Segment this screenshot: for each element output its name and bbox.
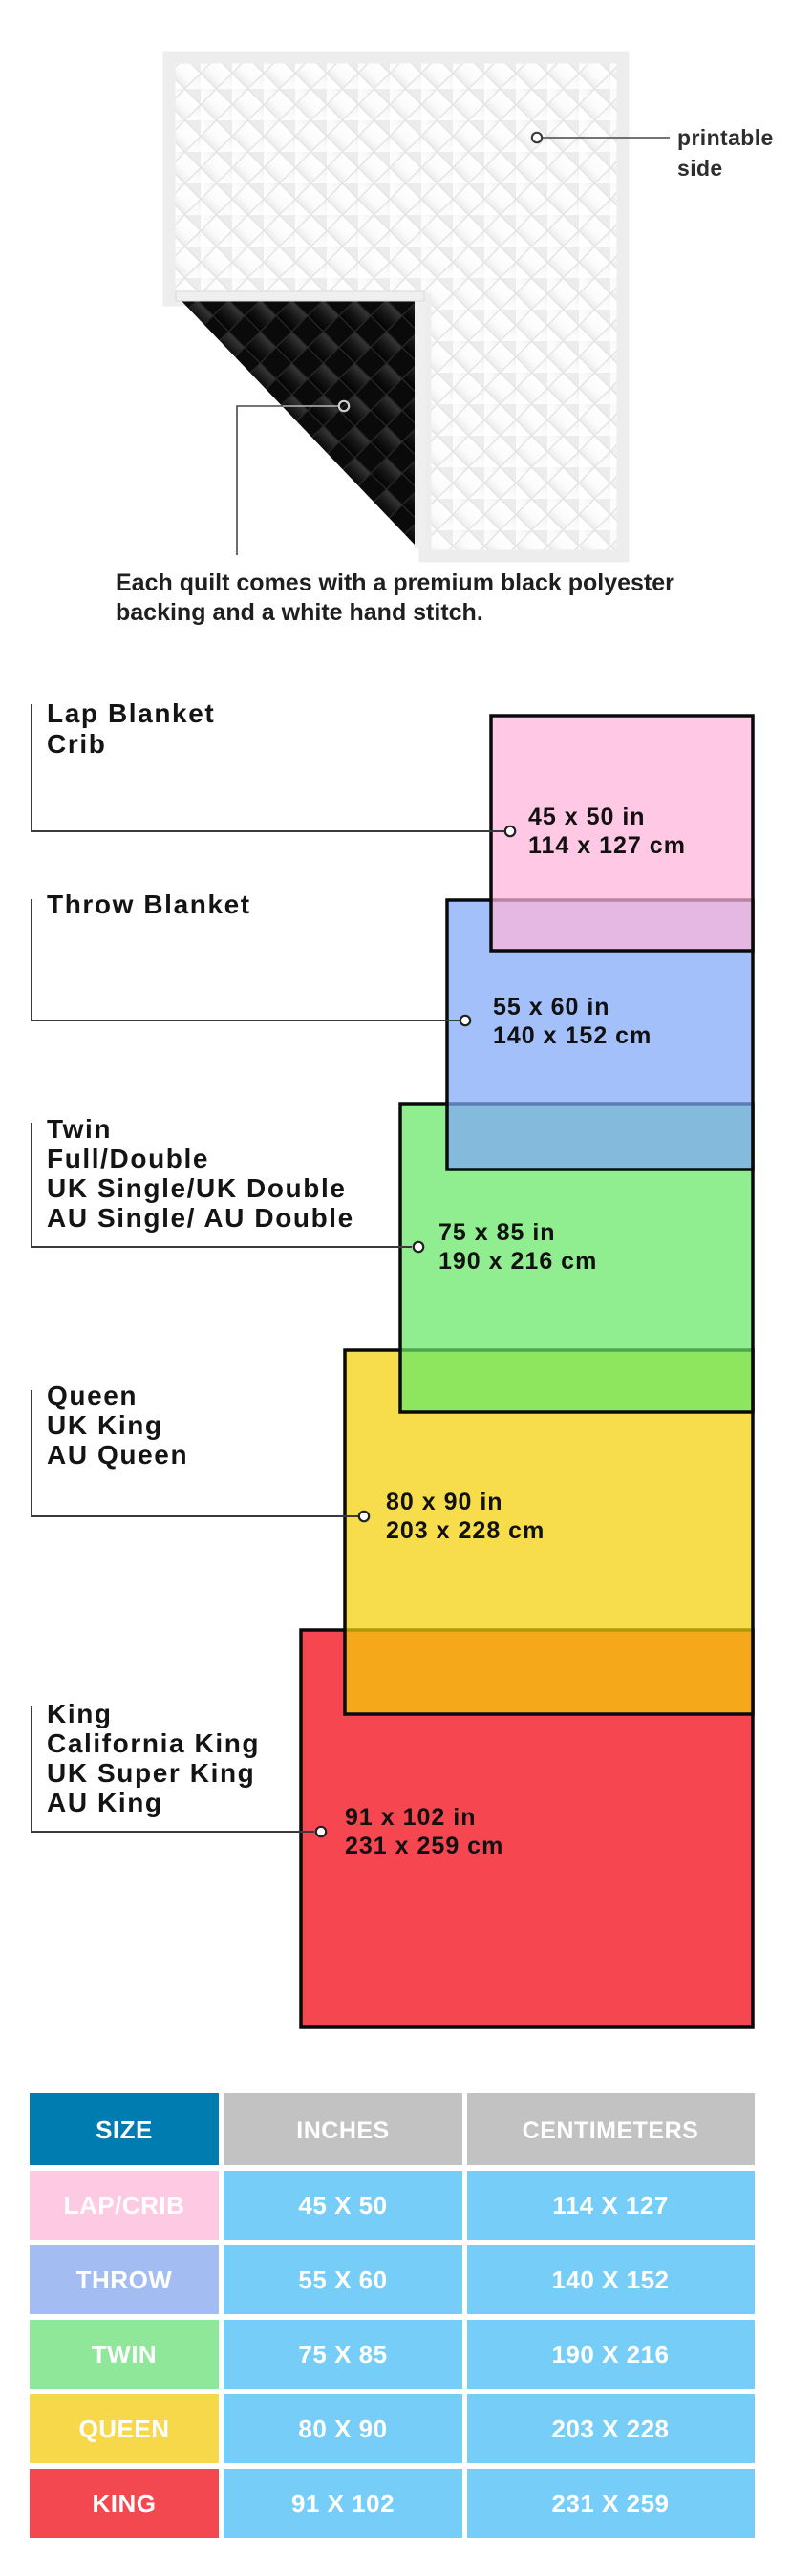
svg-text:231 X 259: 231 X 259 <box>551 2489 669 2518</box>
svg-text:King: King <box>47 1699 113 1728</box>
svg-text:203 x 228 cm: 203 x 228 cm <box>386 1517 545 1544</box>
svg-text:TWIN: TWIN <box>92 2340 157 2369</box>
svg-text:AU King: AU King <box>47 1788 163 1817</box>
svg-text:QUEEN: QUEEN <box>79 2415 170 2443</box>
svg-text:Crib: Crib <box>47 729 106 759</box>
svg-text:80 X 90: 80 X 90 <box>298 2415 387 2443</box>
svg-text:75 x 85 in: 75 x 85 in <box>438 1219 556 1246</box>
svg-text:KING: KING <box>93 2489 157 2518</box>
svg-text:THROW: THROW <box>76 2265 173 2294</box>
svg-text:140 x 152 cm: 140 x 152 cm <box>493 1022 652 1049</box>
svg-text:AU Queen: AU Queen <box>47 1440 188 1470</box>
svg-text:UK Single/UK Double: UK Single/UK Double <box>47 1173 347 1203</box>
svg-text:91 X 102: 91 X 102 <box>291 2489 395 2518</box>
svg-text:80 x 90 in: 80 x 90 in <box>386 1489 503 1515</box>
svg-text:Twin: Twin <box>47 1114 112 1144</box>
svg-text:75 X 85: 75 X 85 <box>298 2340 387 2369</box>
svg-text:190 X 216: 190 X 216 <box>551 2340 669 2369</box>
svg-text:203 X 228: 203 X 228 <box>551 2415 669 2443</box>
svg-text:backing and a white hand stitc: backing and a white hand stitch. <box>116 599 483 626</box>
svg-text:114 x 127 cm: 114 x 127 cm <box>528 832 686 859</box>
svg-text:Queen: Queen <box>47 1381 138 1410</box>
svg-text:printable: printable <box>677 125 774 150</box>
svg-text:45 x 50 in: 45 x 50 in <box>528 804 646 830</box>
svg-text:California King: California King <box>47 1728 260 1758</box>
svg-text:190 x 216 cm: 190 x 216 cm <box>438 1248 597 1275</box>
svg-text:55 X 60: 55 X 60 <box>298 2265 387 2294</box>
svg-text:Lap Blanket: Lap Blanket <box>47 698 215 728</box>
svg-text:UK Super King: UK Super King <box>47 1758 255 1788</box>
svg-text:55 x 60 in: 55 x 60 in <box>493 994 610 1020</box>
svg-text:INCHES: INCHES <box>296 2117 389 2144</box>
svg-text:140 X 152: 140 X 152 <box>551 2265 669 2294</box>
svg-text:Throw Blanket: Throw Blanket <box>47 890 251 919</box>
svg-text:SIZE: SIZE <box>96 2115 153 2144</box>
svg-text:45 X 50: 45 X 50 <box>298 2191 387 2220</box>
svg-text:231 x 259 cm: 231 x 259 cm <box>345 1833 503 1859</box>
svg-text:UK King: UK King <box>47 1410 163 1440</box>
svg-text:91 x 102 in: 91 x 102 in <box>345 1804 476 1831</box>
svg-text:CENTIMETERS: CENTIMETERS <box>523 2117 699 2144</box>
svg-text:LAP/CRIB: LAP/CRIB <box>64 2191 185 2220</box>
svg-text:AU Single/ AU Double: AU Single/ AU Double <box>47 1203 354 1233</box>
svg-text:side: side <box>677 156 723 181</box>
svg-text:Full/Double: Full/Double <box>47 1144 209 1173</box>
svg-text:114 X 127: 114 X 127 <box>552 2191 669 2220</box>
svg-text:Each quilt comes with a premiu: Each quilt comes with a premium black po… <box>116 569 674 596</box>
